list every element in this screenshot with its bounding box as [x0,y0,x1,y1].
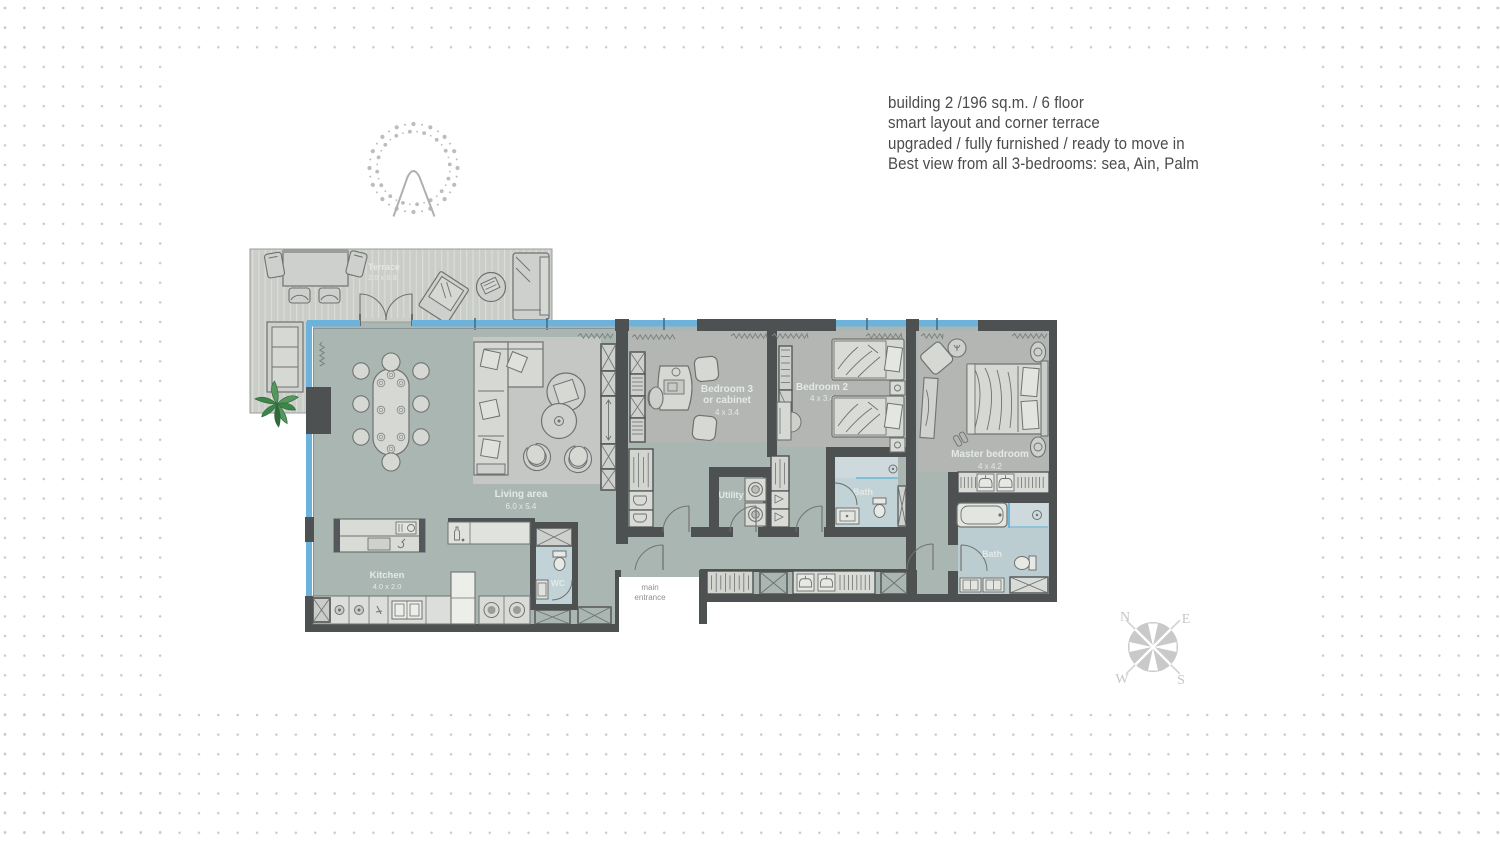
svg-text:S: S [1177,673,1185,688]
svg-text:Bath: Bath [853,487,873,497]
svg-text:E: E [1182,612,1191,627]
svg-text:N: N [1120,610,1130,625]
svg-text:4 x 3.4: 4 x 3.4 [715,408,740,417]
svg-text:Terrace: Terrace [368,262,400,272]
svg-text:main: main [641,583,658,592]
svg-text:or cabinet: or cabinet [703,395,751,406]
svg-text:Master bedroom: Master bedroom [951,449,1029,460]
svg-text:Bath: Bath [982,549,1002,559]
svg-text:WC: WC [551,578,565,588]
svg-text:2.0 x 6.8: 2.0 x 6.8 [368,273,397,282]
svg-text:entrance: entrance [634,593,666,602]
svg-text:Kitchen: Kitchen [370,570,405,581]
svg-text:Living area: Living area [495,489,548,500]
svg-text:6.0 x 5.4: 6.0 x 5.4 [506,502,537,511]
svg-text:Utility: Utility [718,490,743,500]
svg-text:Bedroom 2: Bedroom 2 [796,382,849,393]
svg-text:4.0 x 2.0: 4.0 x 2.0 [373,582,402,591]
svg-text:Bedroom 3: Bedroom 3 [701,384,754,395]
svg-text:4 x 4.2: 4 x 4.2 [978,462,1003,471]
svg-text:4 x 3.4: 4 x 3.4 [810,394,835,403]
svg-text:W: W [1115,672,1129,687]
